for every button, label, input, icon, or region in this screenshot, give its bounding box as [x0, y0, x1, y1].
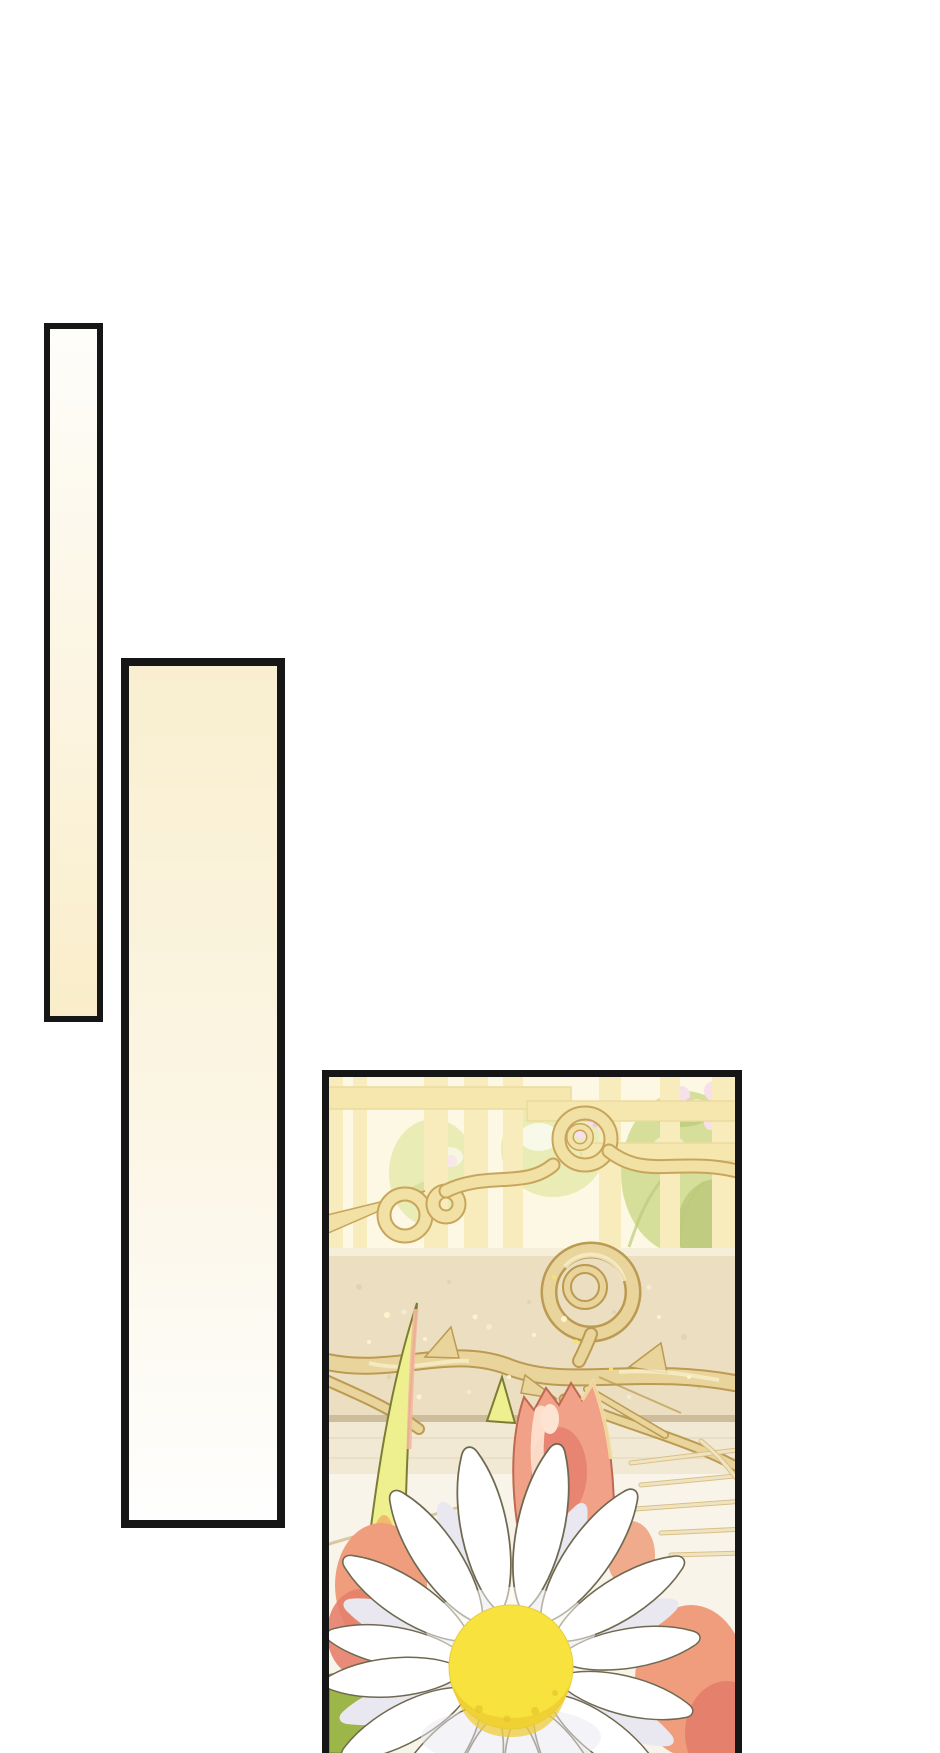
garden-scene-drawing: [329, 1077, 735, 1753]
comic-page: [0, 0, 940, 1753]
panel-gradient-bar-right: [121, 658, 285, 1528]
panel-garden-illustration: [322, 1070, 742, 1753]
daisy-center: [449, 1605, 573, 1737]
panel-gradient-bar-left: [44, 323, 103, 1022]
